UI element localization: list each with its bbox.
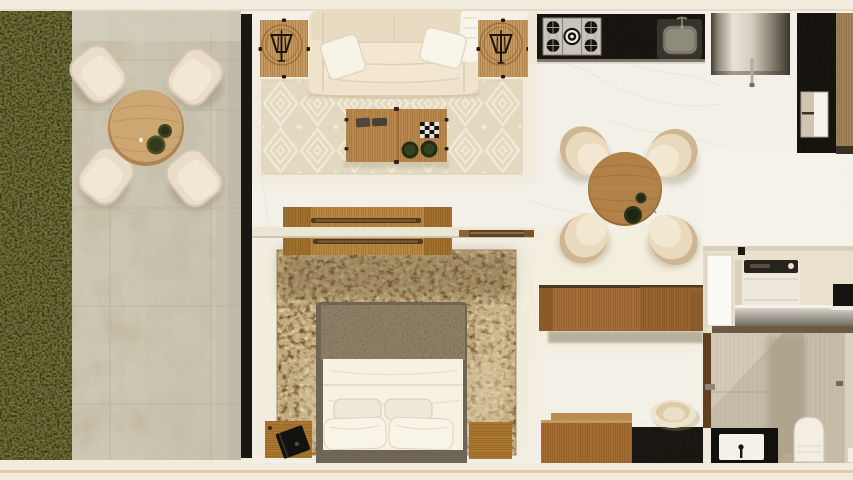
svg-text:VANITY: VANITY bbox=[633, 415, 660, 422]
